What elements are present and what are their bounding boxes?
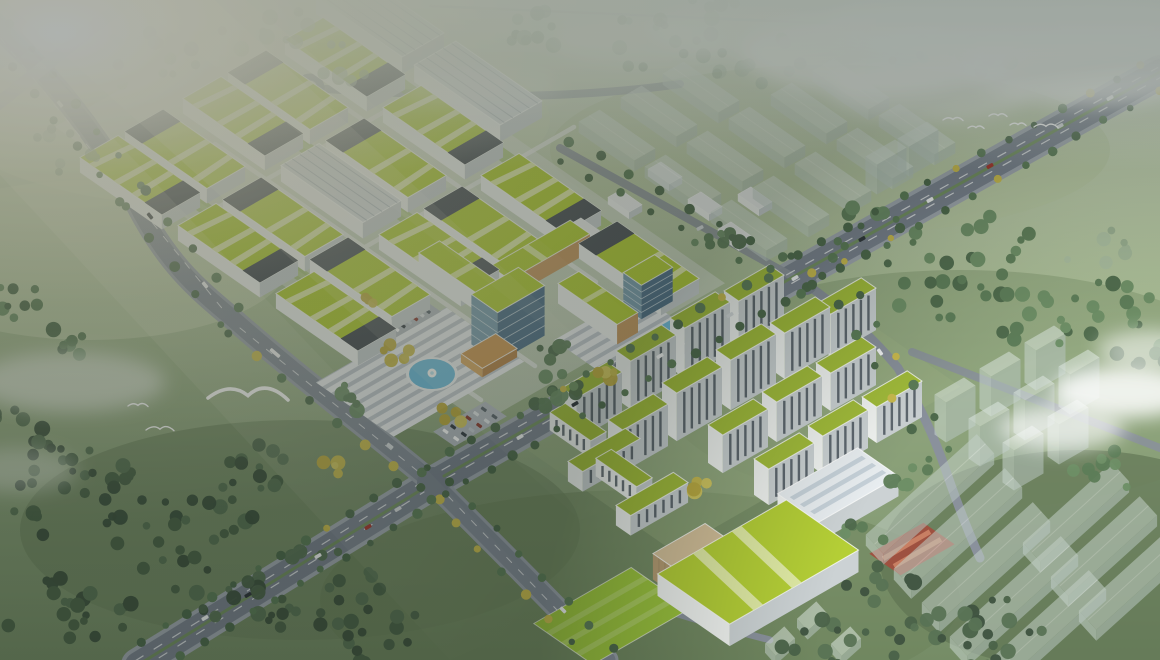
vignette [0,0,1160,660]
aerial-rendering [0,0,1160,660]
aerial-rendering-canvas [0,0,1160,660]
atmosphere [0,0,1160,660]
